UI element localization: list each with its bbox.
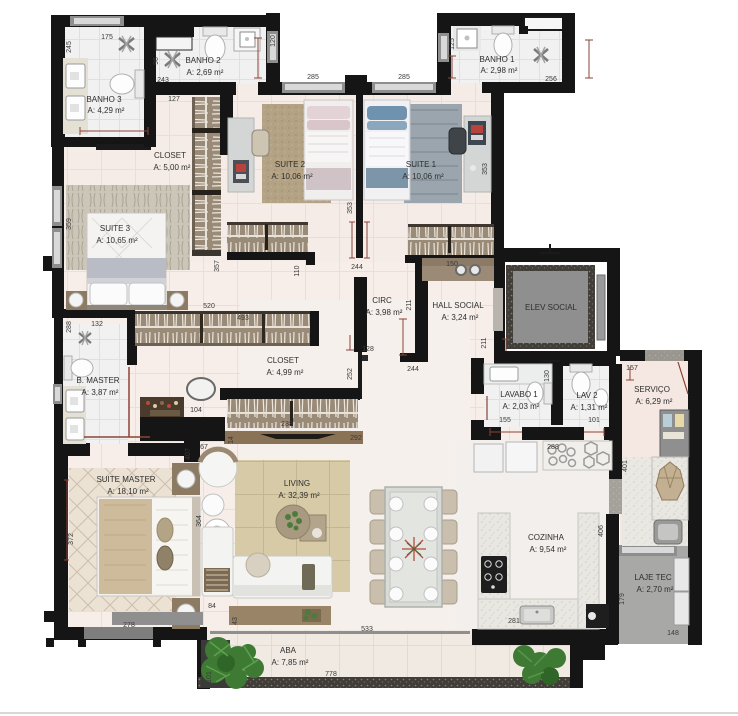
svg-text:292: 292: [350, 435, 362, 442]
svg-text:104: 104: [190, 407, 202, 414]
svg-text:132: 132: [91, 321, 103, 328]
svg-text:84: 84: [208, 603, 216, 610]
svg-text:BANHO 2: BANHO 2: [185, 56, 221, 65]
svg-text:120: 120: [270, 35, 277, 47]
svg-text:353: 353: [347, 202, 354, 214]
svg-text:288: 288: [281, 421, 293, 428]
svg-text:A: 3,87 m²: A: 3,87 m²: [82, 388, 119, 397]
svg-text:A: 32,39 m²: A: 32,39 m²: [278, 491, 320, 500]
svg-text:A: 5,00 m²: A: 5,00 m²: [154, 163, 191, 172]
svg-text:14: 14: [228, 436, 235, 444]
svg-text:155: 155: [499, 417, 511, 424]
svg-text:A: 4,29 m²: A: 4,29 m²: [88, 106, 125, 115]
svg-text:150: 150: [446, 261, 458, 268]
svg-text:520: 520: [203, 303, 215, 310]
svg-text:A: 9,54 m²: A: 9,54 m²: [530, 545, 567, 554]
svg-text:A: 3,24 m²: A: 3,24 m²: [442, 313, 479, 322]
svg-text:SUITE MASTER: SUITE MASTER: [96, 475, 155, 484]
svg-text:HALL SOCIAL: HALL SOCIAL: [432, 301, 484, 310]
svg-text:357: 357: [214, 260, 221, 272]
svg-text:101: 101: [206, 671, 213, 683]
svg-text:533: 533: [361, 626, 373, 633]
svg-text:SERVIÇO: SERVIÇO: [634, 385, 670, 394]
svg-text:278: 278: [123, 622, 135, 629]
svg-text:A: 10,06 m²: A: 10,06 m²: [402, 172, 444, 181]
svg-text:A: 6,29 m²: A: 6,29 m²: [636, 397, 673, 406]
svg-text:SUITE 3: SUITE 3: [100, 224, 131, 233]
svg-text:128: 128: [362, 346, 374, 353]
svg-text:LAV 2: LAV 2: [576, 391, 598, 400]
svg-text:67: 67: [200, 444, 208, 451]
svg-text:359: 359: [66, 218, 73, 230]
svg-text:243: 243: [157, 77, 169, 84]
svg-text:493: 493: [237, 315, 249, 322]
svg-text:110: 110: [294, 265, 301, 276]
svg-text:245: 245: [66, 41, 73, 53]
svg-text:A: 2,70 m²: A: 2,70 m²: [637, 585, 674, 594]
svg-text:LIVING: LIVING: [284, 479, 310, 488]
svg-text:406: 406: [598, 525, 605, 537]
svg-text:A: 2,69 m²: A: 2,69 m²: [187, 68, 224, 77]
svg-text:96: 96: [153, 57, 160, 65]
svg-text:125: 125: [449, 38, 456, 50]
svg-text:COZINHA: COZINHA: [528, 533, 565, 542]
svg-text:778: 778: [325, 671, 337, 678]
svg-text:LAJE TEC: LAJE TEC: [634, 573, 671, 582]
svg-text:101: 101: [588, 417, 600, 424]
svg-text:A: 1,31 m²: A: 1,31 m²: [571, 403, 608, 412]
svg-text:285: 285: [307, 74, 319, 81]
svg-text:BANHO 3: BANHO 3: [86, 95, 122, 104]
svg-text:244: 244: [407, 366, 419, 373]
svg-text:364: 364: [196, 515, 203, 527]
svg-text:244: 244: [351, 264, 363, 271]
svg-text:372: 372: [68, 533, 75, 545]
svg-text:A: 2,98 m²: A: 2,98 m²: [481, 66, 518, 75]
svg-text:288: 288: [547, 444, 559, 451]
svg-text:211: 211: [406, 299, 413, 310]
svg-text:288: 288: [66, 321, 73, 333]
svg-text:43: 43: [232, 617, 239, 625]
svg-text:281: 281: [508, 618, 520, 625]
svg-text:179: 179: [619, 593, 626, 605]
svg-text:256: 256: [545, 76, 557, 83]
svg-text:A: 4,99 m²: A: 4,99 m²: [267, 368, 304, 377]
svg-text:127: 127: [168, 96, 180, 103]
svg-text:A: 18,10 m²: A: 18,10 m²: [107, 487, 149, 496]
svg-text:175: 175: [101, 34, 113, 41]
svg-text:CLOSET: CLOSET: [154, 151, 186, 160]
svg-text:ELEV SOCIAL: ELEV SOCIAL: [525, 303, 578, 312]
svg-text:CLOSET: CLOSET: [267, 356, 299, 365]
svg-text:ABA: ABA: [280, 646, 297, 655]
svg-text:A: 10,06 m²: A: 10,06 m²: [271, 172, 313, 181]
svg-text:LAVABO 1: LAVABO 1: [500, 390, 538, 399]
svg-text:211: 211: [481, 337, 488, 348]
svg-text:285: 285: [398, 74, 410, 81]
svg-text:A: 7,85 m²: A: 7,85 m²: [272, 658, 309, 667]
svg-text:A: 10,65 m²: A: 10,65 m²: [96, 236, 138, 245]
svg-text:A: 3,98 m²: A: 3,98 m²: [366, 308, 403, 317]
svg-text:401: 401: [622, 460, 629, 472]
svg-text:B. MASTER: B. MASTER: [76, 376, 119, 385]
svg-text:130: 130: [544, 370, 551, 382]
svg-text:407: 407: [185, 448, 192, 460]
svg-text:SUITE 1: SUITE 1: [406, 160, 437, 169]
svg-text:BANHO 1: BANHO 1: [479, 55, 515, 64]
svg-text:SUITE 2: SUITE 2: [275, 160, 306, 169]
svg-text:353: 353: [482, 163, 489, 175]
svg-text:CIRC: CIRC: [372, 296, 392, 305]
svg-text:148: 148: [667, 630, 679, 637]
svg-text:157: 157: [626, 365, 638, 372]
svg-text:A: 2,03 m²: A: 2,03 m²: [503, 402, 540, 411]
svg-text:252: 252: [347, 368, 354, 380]
